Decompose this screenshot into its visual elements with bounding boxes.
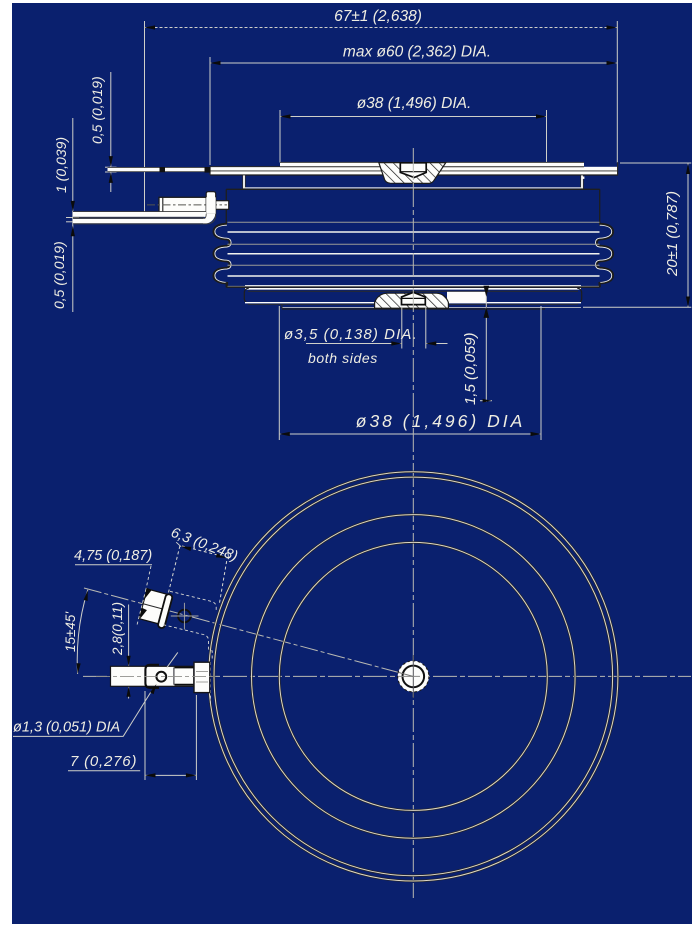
svg-text:1,5 (0,059): 1,5 (0,059) — [462, 332, 479, 405]
svg-text:ø38 (1,496) DIA.: ø38 (1,496) DIA. — [357, 95, 472, 112]
svg-text:4,75 (0,187): 4,75 (0,187) — [74, 548, 152, 564]
svg-text:15±45': 15±45' — [63, 612, 78, 652]
svg-text:ø3,5 (0,138) DIA.: ø3,5 (0,138) DIA. — [284, 326, 418, 343]
svg-text:both sides: both sides — [308, 350, 378, 366]
svg-text:7 (0,276): 7 (0,276) — [70, 753, 137, 770]
svg-text:ø38 (1,496) DIA: ø38 (1,496) DIA — [356, 411, 526, 431]
svg-text:max ø60 (2,362) DIA.: max ø60 (2,362) DIA. — [343, 44, 491, 61]
svg-text:0,5 (0,019): 0,5 (0,019) — [89, 76, 105, 144]
svg-text:ø1,3 (0,051) DIA: ø1,3 (0,051) DIA — [13, 720, 120, 736]
svg-text:20±1 (0,787): 20±1 (0,787) — [664, 191, 681, 277]
svg-text:67±1 (2,638): 67±1 (2,638) — [334, 8, 422, 25]
svg-text:0,5 (0,019): 0,5 (0,019) — [51, 241, 67, 309]
svg-text:1 (0,039): 1 (0,039) — [53, 137, 69, 193]
svg-text:2,8(0,11): 2,8(0,11) — [110, 602, 125, 656]
